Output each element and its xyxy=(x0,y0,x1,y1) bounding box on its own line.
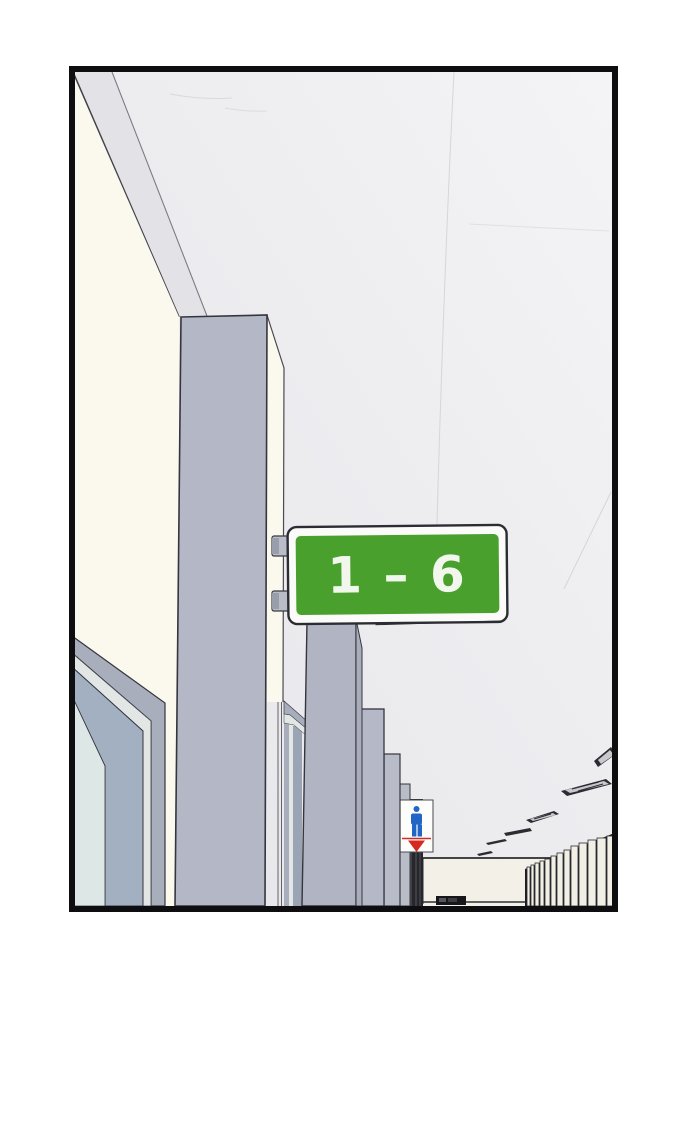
pillar-face xyxy=(302,619,356,906)
slat xyxy=(564,850,570,906)
frame-strip xyxy=(293,726,302,906)
hallway-scene: 1 – 6 xyxy=(75,72,612,906)
frame-strip xyxy=(284,714,289,906)
frame-strip xyxy=(289,720,293,906)
comic-panel: 1 – 6 xyxy=(69,66,618,912)
room-range-sign: 1 – 6 xyxy=(288,525,508,626)
sign-label: 1 – 6 xyxy=(327,545,467,604)
slat xyxy=(579,843,587,906)
pillar-main xyxy=(175,315,267,906)
slat xyxy=(531,865,534,906)
bracket-shade xyxy=(272,593,279,609)
object-detail xyxy=(448,898,457,902)
slat xyxy=(588,840,596,906)
slat xyxy=(535,863,539,906)
pillar-second xyxy=(302,619,362,906)
distant-object xyxy=(436,896,466,905)
slat xyxy=(597,838,606,906)
slat xyxy=(557,853,563,906)
slat xyxy=(571,846,578,906)
bracket-shade xyxy=(272,538,279,554)
pillar-side xyxy=(356,619,362,906)
pillar-step xyxy=(384,754,400,906)
slat xyxy=(551,856,556,906)
slat xyxy=(527,867,530,906)
slat xyxy=(540,861,544,906)
wall-strip xyxy=(267,315,284,702)
object-detail xyxy=(439,898,446,902)
restroom-sign xyxy=(400,800,433,852)
slat xyxy=(545,859,550,906)
slat xyxy=(607,836,612,906)
